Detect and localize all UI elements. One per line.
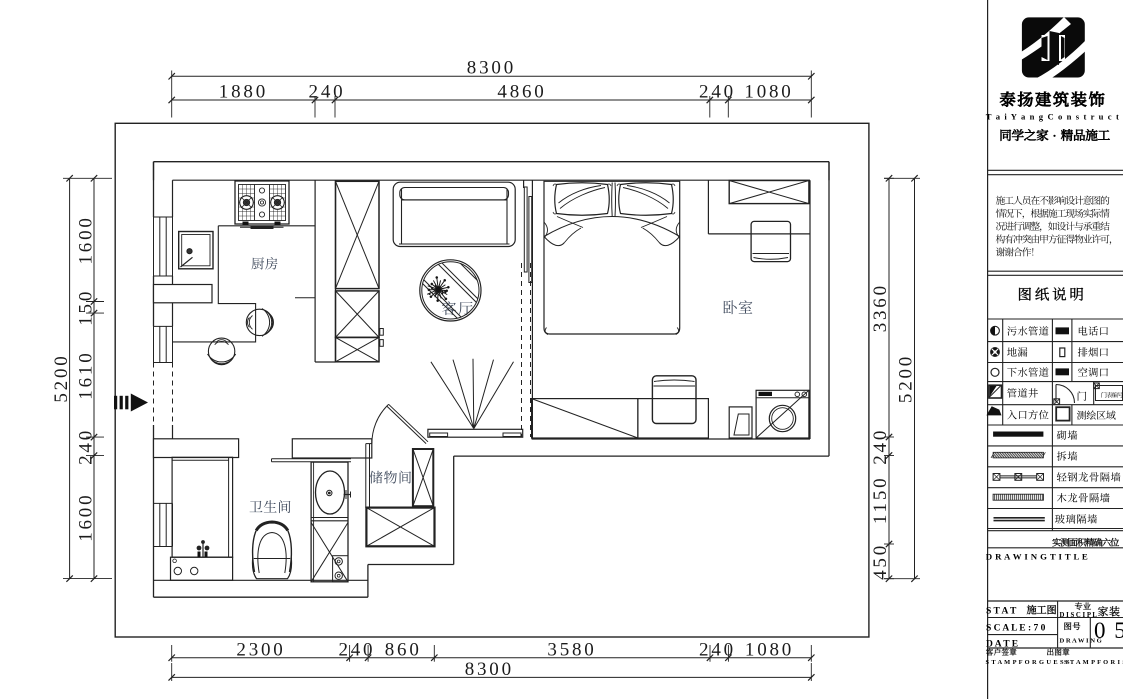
svg-text:240: 240 [699, 639, 736, 660]
svg-text:0 5: 0 5 [1094, 618, 1123, 643]
svg-text:3580: 3580 [547, 639, 596, 660]
svg-text:T a i Y a n g C o n s t r u: T a i Y a n g C o n s t r u c t i o n [986, 112, 1123, 122]
svg-text:240: 240 [309, 82, 346, 103]
svg-text:S T A M P F O R G U E S S: S T A M P F O R G U E S S [986, 659, 1071, 666]
svg-text:1880: 1880 [219, 82, 268, 103]
svg-text:S T A T: S T A T [986, 607, 1017, 617]
svg-text:5200: 5200 [51, 353, 72, 402]
svg-text:1600: 1600 [75, 215, 96, 264]
svg-text:S C A L E : 7 0: S C A L E : 7 0 [986, 624, 1046, 634]
svg-text:8300: 8300 [467, 58, 516, 79]
svg-text:D A T E: D A T E [986, 640, 1018, 650]
svg-text:8300: 8300 [465, 659, 514, 680]
svg-text:5200: 5200 [896, 354, 917, 403]
svg-text:240: 240 [338, 639, 375, 660]
svg-text:3360: 3360 [870, 283, 891, 332]
svg-text:1080: 1080 [745, 639, 794, 660]
svg-text:1610: 1610 [75, 350, 96, 399]
svg-text:1600: 1600 [75, 493, 96, 542]
svg-text:D R A W I N G T I T L E: D R A W I N G T I T L E [986, 552, 1088, 562]
svg-text:240: 240 [699, 82, 736, 103]
svg-text:D I S C I P L: D I S C I P L [1060, 612, 1098, 619]
svg-text:2300: 2300 [236, 639, 285, 660]
svg-text:1150: 1150 [870, 476, 891, 525]
svg-text:450: 450 [870, 543, 891, 580]
svg-text:150: 150 [75, 289, 96, 326]
svg-text:860: 860 [385, 639, 422, 660]
svg-text:240: 240 [75, 428, 96, 465]
svg-text:240: 240 [870, 428, 891, 465]
svg-text:1080: 1080 [744, 82, 793, 103]
svg-text:4860: 4860 [497, 82, 546, 103]
svg-text:S T A M P F O R I S S U E: S T A M P F O R I S S U E [1064, 659, 1123, 666]
